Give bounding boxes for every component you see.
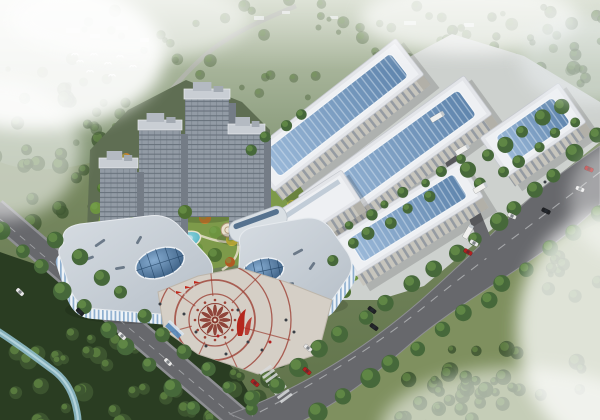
mandala-dot bbox=[231, 309, 234, 312]
tree bbox=[239, 85, 245, 91]
tree bbox=[266, 70, 276, 80]
tree bbox=[94, 270, 110, 286]
tree bbox=[108, 404, 121, 417]
tree bbox=[281, 120, 292, 131]
tower-penthouse bbox=[193, 82, 211, 91]
tree bbox=[246, 145, 257, 156]
tree bbox=[527, 182, 543, 198]
tree bbox=[100, 321, 117, 338]
tree bbox=[493, 275, 510, 292]
tree bbox=[254, 88, 264, 98]
tree bbox=[16, 244, 30, 258]
tree bbox=[449, 245, 466, 262]
tree bbox=[425, 260, 442, 277]
pedestrian bbox=[217, 335, 220, 338]
tree bbox=[87, 334, 96, 343]
tree bbox=[186, 401, 200, 415]
tower-roof-box bbox=[124, 155, 132, 161]
tree bbox=[570, 117, 580, 127]
tree bbox=[546, 169, 560, 183]
tree bbox=[359, 310, 373, 324]
tree bbox=[178, 205, 192, 219]
tree bbox=[498, 166, 509, 177]
tree bbox=[397, 187, 408, 198]
mandala-dot bbox=[224, 336, 227, 339]
tower-roof-box bbox=[252, 121, 260, 127]
tower-roof-box bbox=[166, 117, 175, 123]
pedestrian bbox=[159, 303, 162, 306]
mandala-dot bbox=[204, 336, 207, 339]
tree bbox=[499, 341, 515, 357]
tree bbox=[177, 344, 192, 359]
tree bbox=[401, 372, 416, 387]
tree bbox=[534, 142, 544, 152]
tree bbox=[114, 286, 127, 299]
pedestrian bbox=[285, 319, 288, 322]
tree bbox=[163, 379, 181, 397]
tree bbox=[9, 386, 22, 399]
tree bbox=[360, 368, 380, 388]
tree bbox=[128, 386, 140, 398]
pedestrian bbox=[225, 353, 228, 356]
tree bbox=[305, 94, 311, 100]
tree bbox=[117, 338, 135, 356]
mandala-center-dot bbox=[214, 319, 217, 322]
tree bbox=[403, 275, 420, 292]
tree bbox=[348, 238, 359, 249]
tree bbox=[47, 232, 64, 249]
tree bbox=[137, 309, 151, 323]
tree bbox=[101, 359, 114, 372]
tree bbox=[138, 383, 150, 395]
pedestrian bbox=[261, 349, 264, 352]
pedestrian bbox=[544, 181, 547, 184]
tree bbox=[53, 282, 72, 301]
aerial-development-rendering bbox=[0, 0, 600, 420]
tree bbox=[424, 191, 435, 202]
tree bbox=[331, 326, 348, 343]
mandala-dot bbox=[194, 319, 197, 322]
mandala-dot bbox=[224, 301, 227, 304]
tree bbox=[421, 179, 430, 188]
tree bbox=[155, 327, 170, 342]
tree bbox=[550, 128, 560, 138]
tree bbox=[380, 200, 388, 208]
tree bbox=[52, 201, 66, 215]
tree bbox=[345, 221, 354, 230]
tree bbox=[244, 390, 260, 406]
tower-penthouse bbox=[147, 113, 165, 122]
tree bbox=[361, 227, 374, 240]
pedestrian bbox=[183, 313, 186, 316]
tree bbox=[481, 292, 498, 309]
tree bbox=[142, 358, 156, 372]
tower-window-grid bbox=[185, 98, 229, 217]
tree bbox=[201, 362, 216, 377]
tree bbox=[34, 259, 49, 274]
tree bbox=[311, 71, 321, 81]
pedestrian bbox=[247, 341, 250, 344]
tree bbox=[310, 340, 328, 358]
tree bbox=[260, 131, 271, 142]
tree bbox=[436, 166, 447, 177]
tree bbox=[410, 342, 425, 357]
tower-penthouse bbox=[107, 151, 123, 160]
tower-roof-box bbox=[214, 86, 224, 92]
tree bbox=[566, 144, 584, 162]
tree bbox=[236, 372, 245, 381]
mandala-dot bbox=[196, 309, 199, 312]
tree bbox=[490, 212, 508, 230]
tree bbox=[366, 209, 377, 220]
tree bbox=[61, 403, 71, 413]
mandala-dot bbox=[214, 299, 217, 302]
pedestrian bbox=[269, 341, 272, 344]
tree bbox=[460, 162, 476, 178]
tree bbox=[195, 70, 205, 80]
tree bbox=[32, 378, 48, 394]
pedestrian bbox=[205, 345, 208, 348]
tree bbox=[59, 355, 69, 365]
tree bbox=[497, 137, 513, 153]
tree bbox=[448, 345, 456, 353]
tree bbox=[91, 124, 103, 136]
pedestrian bbox=[293, 331, 296, 334]
tree bbox=[222, 381, 234, 393]
tree bbox=[402, 203, 412, 213]
tree bbox=[78, 164, 89, 175]
mandala-dot bbox=[234, 319, 237, 322]
tree bbox=[512, 155, 525, 168]
mandala-dot bbox=[204, 301, 207, 304]
mandala-dot bbox=[231, 329, 234, 332]
tree bbox=[296, 109, 307, 120]
tree bbox=[72, 249, 89, 266]
tree bbox=[471, 346, 481, 356]
tree bbox=[225, 257, 235, 267]
tree bbox=[82, 346, 94, 358]
tree bbox=[455, 304, 472, 321]
aerial-rendering-stage bbox=[0, 0, 600, 420]
tree bbox=[385, 217, 397, 229]
tree bbox=[327, 255, 338, 266]
tree bbox=[66, 328, 79, 341]
mandala-dot bbox=[214, 339, 217, 342]
pedestrian bbox=[195, 331, 198, 334]
tree bbox=[209, 226, 221, 238]
tree bbox=[377, 295, 394, 312]
tree bbox=[435, 322, 450, 337]
tree bbox=[535, 109, 551, 125]
tree bbox=[289, 74, 298, 83]
tree bbox=[335, 388, 351, 404]
tree bbox=[269, 378, 285, 394]
tree bbox=[482, 149, 494, 161]
tree bbox=[516, 126, 528, 138]
pedestrian bbox=[237, 309, 240, 312]
tree bbox=[381, 355, 399, 373]
tower-penthouse bbox=[235, 117, 250, 126]
